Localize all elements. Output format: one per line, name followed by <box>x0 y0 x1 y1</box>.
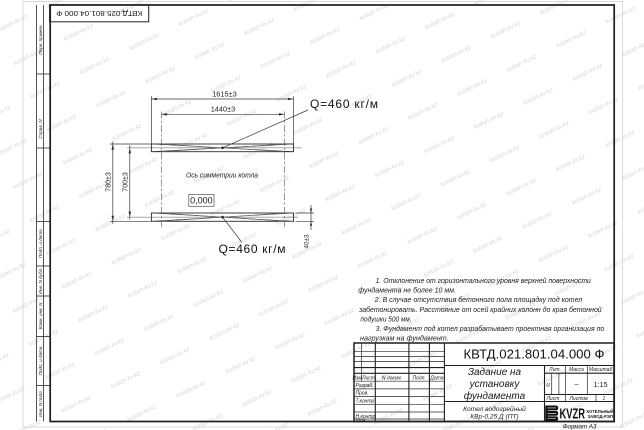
svg-text:Лит.: Лит. <box>548 367 561 373</box>
svg-text:Справ. N: Справ. N <box>38 119 43 139</box>
svg-text:40±3: 40±3 <box>303 234 310 249</box>
svg-text:Q=460 кг/м: Q=460 кг/м <box>219 242 286 256</box>
svg-text:1:15: 1:15 <box>594 380 608 389</box>
svg-text:Котел водогрейный: Котел водогрейный <box>463 405 526 413</box>
svg-text:700±3: 700±3 <box>122 172 129 192</box>
svg-text:Лист: Лист <box>361 375 375 381</box>
svg-text:1615±3: 1615±3 <box>212 89 237 98</box>
svg-text:установку: установку <box>469 379 521 390</box>
svg-text:Масса: Масса <box>569 367 584 373</box>
svg-text:Листов: Листов <box>569 396 589 402</box>
svg-text:Пров.: Пров. <box>356 391 369 397</box>
svg-text:Ось симметрии котла: Ось симметрии котла <box>186 171 258 180</box>
svg-text:KVZR: KVZR <box>560 407 586 423</box>
svg-text:Лист: Лист <box>546 396 560 402</box>
svg-text:1. Отклонение от горизонтально: 1. Отклонение от горизонтального уровня … <box>376 276 591 285</box>
svg-text:2. В случае отсутствия бетонно: 2. В случае отсутствия бетонного пола пл… <box>374 295 583 304</box>
svg-text:Инв. N подл.: Инв. N подл. <box>38 390 43 417</box>
svg-text:Подп. и дата: Подп. и дата <box>38 229 43 258</box>
svg-text:и: и <box>546 382 550 389</box>
svg-text:ЗАВОД-РЭП: ЗАВОД-РЭП <box>588 414 614 419</box>
svg-text:Подп.: Подп. <box>412 375 425 381</box>
svg-text:Взам. инв. N: Взам. инв. N <box>38 302 43 329</box>
svg-text:Формат А3: Формат А3 <box>563 423 597 430</box>
svg-text:Дата: Дата <box>429 375 443 381</box>
svg-text:Т.контр: Т.контр <box>356 398 375 404</box>
svg-text:нагрузкам на фундамент.: нагрузкам на фундамент. <box>360 334 449 343</box>
svg-text:КОТЕЛЬНЫЙ: КОТЕЛЬНЫЙ <box>587 407 614 414</box>
svg-text:780±3: 780±3 <box>105 172 112 192</box>
svg-text:Разраб.: Разраб. <box>356 383 374 389</box>
svg-text:Масштаб: Масштаб <box>589 367 613 373</box>
svg-text:0,000: 0,000 <box>190 196 213 206</box>
svg-text:Утв.: Утв. <box>356 418 367 424</box>
svg-text:Перв. примен.: Перв. примен. <box>38 24 43 55</box>
svg-text:N докум.: N докум. <box>382 375 402 381</box>
svg-text:забетонировать. Расстояние от: забетонировать. Расстояние от осей крайн… <box>358 305 602 314</box>
svg-text:подушки 500 мм.: подушки 500 мм. <box>360 314 411 323</box>
svg-text:3. Фундамент под котел разраба: 3. Фундамент под котел разрабатывает про… <box>376 324 605 333</box>
svg-text:1440±3: 1440±3 <box>211 104 236 113</box>
svg-text:–: – <box>574 381 578 388</box>
svg-text:КВр-0,25 Д (ПТ): КВр-0,25 Д (ПТ) <box>470 413 518 420</box>
svg-text:фундамента: фундамента <box>464 390 526 402</box>
svg-text:Инв. N дубл.: Инв. N дубл. <box>38 268 43 295</box>
svg-text:Q=460 кг/м: Q=460 кг/м <box>310 97 378 111</box>
svg-text:КВТД.021.801.04.000 Ф: КВТД.021.801.04.000 Ф <box>464 346 605 361</box>
svg-text:Подп. и дата: Подп. и дата <box>38 346 43 375</box>
svg-text:КВТД.025.801.04.000 Ф: КВТД.025.801.04.000 Ф <box>56 9 142 18</box>
svg-text:фундамента не более 10 мм.: фундамента не более 10 мм. <box>358 286 456 295</box>
svg-text:1: 1 <box>603 396 606 402</box>
svg-text:Задание на: Задание на <box>468 367 522 378</box>
